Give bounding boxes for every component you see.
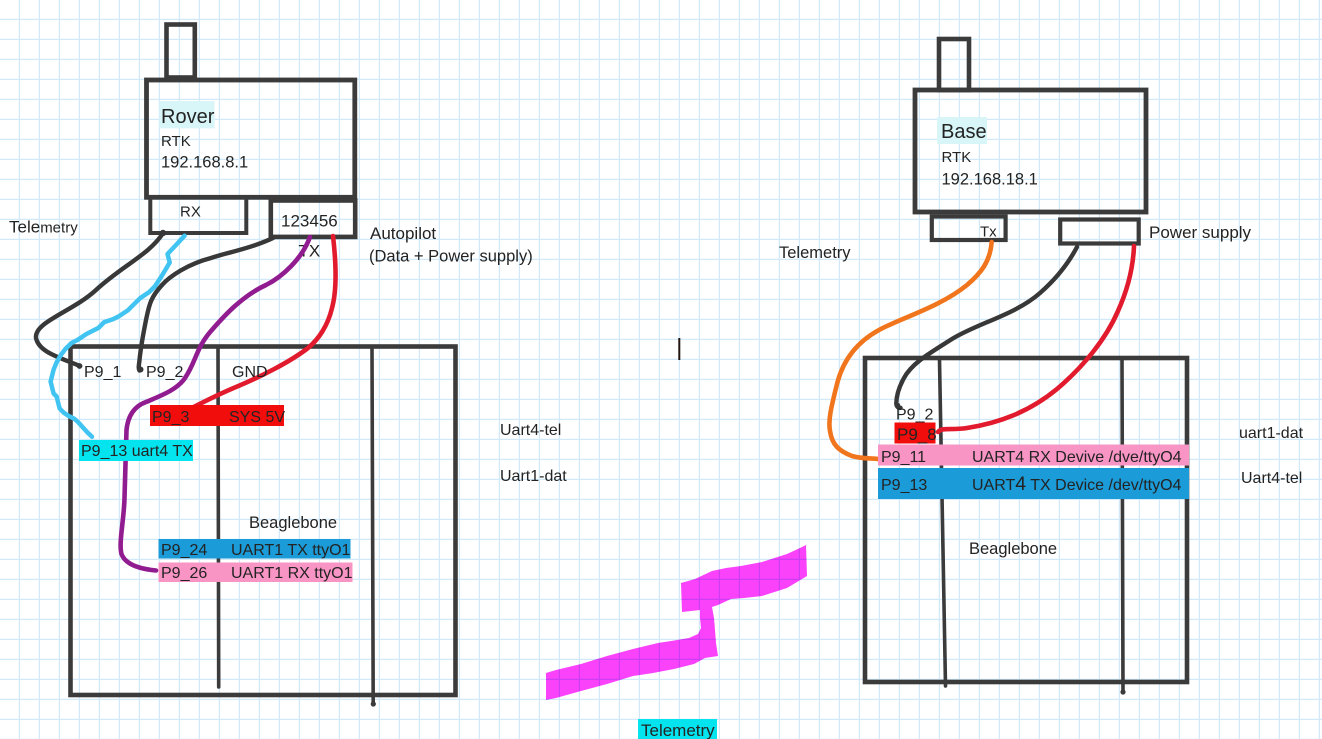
svg-text:UART1 TX ttyO1: UART1 TX ttyO1: [231, 542, 351, 559]
svg-text:Uart4-tel: Uart4-tel: [1241, 470, 1302, 487]
svg-text:P9_8: P9_8: [897, 425, 937, 444]
svg-text:RTK: RTK: [161, 133, 191, 150]
svg-text:P9_3: P9_3: [152, 409, 189, 426]
svg-text:P9_2: P9_2: [146, 364, 183, 381]
svg-text:uart1-dat: uart1-dat: [1239, 425, 1304, 442]
svg-text:Tx: Tx: [980, 224, 997, 241]
svg-text:Autopilot: Autopilot: [370, 224, 436, 243]
svg-text:P9_11: P9_11: [881, 449, 926, 466]
svg-text:123456: 123456: [281, 212, 338, 231]
svg-text:P9_1: P9_1: [84, 364, 121, 381]
svg-text:Beaglebone: Beaglebone: [969, 540, 1057, 558]
svg-text:(Data + Power supply): (Data + Power supply): [369, 248, 533, 266]
svg-text:P9_13 uart4 TX: P9_13 uart4 TX: [81, 443, 193, 460]
svg-text:UART4 RX Devive /dve/ttyO4: UART4 RX Devive /dve/ttyO4: [972, 449, 1182, 466]
svg-text:192.168.18.1: 192.168.18.1: [942, 171, 1038, 189]
svg-text:RTK: RTK: [942, 149, 972, 166]
svg-text:Rover: Rover: [161, 106, 215, 128]
svg-text:192.168.8.1: 192.168.8.1: [161, 154, 248, 172]
svg-text:SYS 5V: SYS 5V: [229, 409, 285, 426]
svg-text:Base: Base: [941, 121, 987, 143]
svg-text:UART4 TX Device /dev/ttyO4: UART4 TX Device /dev/ttyO4: [972, 473, 1182, 495]
svg-text:P9_13: P9_13: [881, 477, 927, 494]
svg-text:GND: GND: [232, 364, 268, 381]
svg-text:Telemetry: Telemetry: [9, 218, 78, 237]
svg-text:Telemetry: Telemetry: [779, 244, 851, 262]
svg-text:Uart4-tel: Uart4-tel: [500, 422, 561, 439]
svg-text:RX: RX: [180, 204, 201, 221]
svg-text:Uart1-dat: Uart1-dat: [500, 468, 567, 485]
svg-text:P9_2: P9_2: [896, 407, 933, 424]
svg-text:UART1 RX ttyO1: UART1 RX ttyO1: [231, 565, 353, 582]
svg-text:Power supply: Power supply: [1149, 223, 1252, 242]
svg-text:Beaglebone: Beaglebone: [249, 514, 337, 532]
svg-text:P9_26: P9_26: [161, 565, 207, 582]
svg-text:P9_24: P9_24: [161, 542, 207, 559]
svg-text:Telemetry: Telemetry: [641, 721, 715, 739]
